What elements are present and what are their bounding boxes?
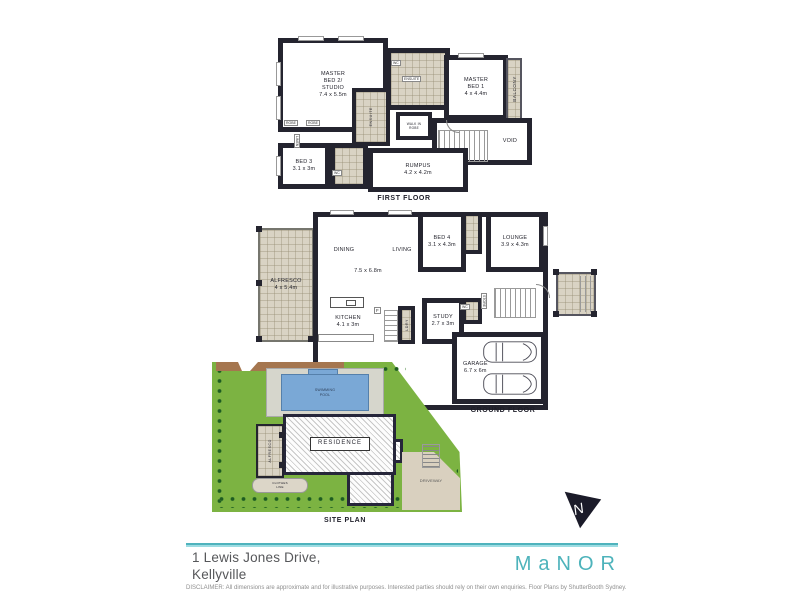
floorplan-page: MASTER BED 2/ STUDIO 7.4 x 5.5m ENSUITE …	[0, 0, 800, 600]
driveway-label: DRIVEWAY	[420, 478, 443, 483]
room-label: MASTER BED 1 4 x 4.4m	[464, 77, 488, 98]
room-balcony: BALCONY	[506, 58, 522, 120]
room-label: BED 4 3.1 x 4.3m	[428, 235, 456, 249]
swimming-pool: SWIMMING POOL	[281, 374, 369, 411]
window	[276, 62, 281, 86]
pier	[279, 462, 285, 468]
robe-label: ROBE	[284, 120, 298, 126]
window	[276, 156, 281, 176]
shrub-border-left	[214, 366, 227, 506]
window	[388, 210, 412, 215]
room-label: ALFRESCO 4 x 5.4m	[270, 278, 301, 292]
pier	[256, 280, 262, 286]
residence-label-box: RESIDENCE	[310, 437, 370, 451]
fridge-label: F	[374, 307, 381, 314]
dining-label: DINING	[324, 247, 364, 254]
pantry-shelves	[384, 310, 398, 342]
pier	[256, 226, 262, 232]
first-floor-caption: FIRST FLOOR	[348, 195, 460, 202]
pool-label: SWIMMING POOL	[315, 388, 335, 397]
window	[276, 96, 281, 120]
laundry-label: LDRY	[405, 319, 409, 331]
window	[338, 36, 364, 41]
wc-gf-label: WC	[460, 304, 470, 310]
window	[543, 226, 548, 246]
room-label: WALK IN ROBE	[407, 122, 421, 130]
room-lounge: LOUNGE 3.9 x 4.3m	[486, 212, 544, 272]
pier	[591, 311, 597, 317]
room-walk-in-robe: WALK IN ROBE	[396, 112, 432, 140]
staircase-ground-floor	[494, 288, 536, 318]
room-label: BED 3 3.1 x 3m	[293, 159, 316, 173]
window	[298, 36, 324, 41]
footer-divider	[186, 543, 618, 547]
room-ensuite-mid: ENSUITE	[352, 88, 390, 146]
balcony-label: BALCONY	[512, 76, 517, 102]
room-laundry: LDRY	[398, 306, 415, 344]
north-arrow-icon: N	[558, 485, 606, 533]
room-label: RUMPUS 4.2 x 4.2m	[404, 163, 432, 177]
room-ensuite-bed4	[462, 212, 482, 254]
room-bathroom	[330, 143, 368, 189]
kitchen-label: KITCHEN 4.1 x 3m	[328, 315, 368, 329]
room-powder	[462, 298, 482, 324]
entry-steps	[580, 276, 592, 312]
pier	[256, 336, 262, 342]
room-label: STUDY 2.7 x 3m	[432, 314, 455, 328]
car-icon	[482, 372, 538, 396]
window	[330, 210, 354, 215]
address-line2: Kellyville	[192, 567, 247, 582]
pier	[591, 269, 597, 275]
living-label: LIVING	[382, 247, 422, 254]
room-garage: GARAGE 6.7 x 6m	[452, 332, 546, 404]
clothes-line: CLOTHES LINE	[252, 478, 308, 493]
pier	[279, 432, 285, 438]
pier	[553, 269, 559, 275]
room-bed3: BED 3 3.1 x 3m	[278, 143, 330, 189]
residence-footprint-ext	[347, 472, 394, 506]
pier	[553, 311, 559, 317]
room-label: MASTER BED 2/ STUDIO 7.4 x 5.5m	[319, 71, 347, 100]
ensuite-top-label: ENSUITE	[402, 76, 421, 82]
window	[458, 53, 484, 58]
room-bed4: BED 4 3.1 x 4.3m	[418, 212, 466, 272]
site-plan-caption: SITE PLAN	[305, 517, 385, 524]
room-rumpus: RUMPUS 4.2 x 4.2m	[368, 148, 468, 192]
clothes-line-label: CLOTHES LINE	[272, 482, 288, 489]
room-alfresco-gf: ALFRESCO 4 x 5.4m	[258, 228, 314, 342]
kitchen-sink	[346, 300, 356, 306]
residence-footprint-notch	[393, 439, 403, 463]
kitchen-bench	[318, 334, 374, 342]
residence-label: RESIDENCE	[318, 440, 362, 448]
wc-top-label: WC	[391, 60, 401, 66]
brand-logo: MaNOR	[502, 553, 622, 576]
store-label: STORE	[481, 293, 487, 309]
ground-floor-caption: GROUND FLOOR	[455, 407, 551, 414]
site-entry-steps	[422, 444, 440, 468]
room-label: LOUNGE 3.9 x 4.3m	[501, 235, 529, 249]
disclaimer-text: DISCLAIMER: All dimensions are approxima…	[186, 585, 626, 591]
ensuite-mid-label: ENSUITE	[369, 107, 373, 126]
void-label: VOID	[503, 138, 517, 145]
wc-bath-label: WC	[332, 170, 342, 176]
linen-label: LINEN	[294, 134, 300, 148]
address-line1: 1 Lewis Jones Drive,	[192, 550, 321, 565]
room-master-bed1: MASTER BED 1 4 x 4.4m	[444, 55, 508, 120]
car-icon	[482, 340, 538, 364]
robe-label: ROBE	[306, 120, 320, 126]
living-dim-label: 7.5 x 6.8m	[346, 268, 390, 275]
site-alfresco-label: ALFRESCO	[268, 439, 272, 463]
